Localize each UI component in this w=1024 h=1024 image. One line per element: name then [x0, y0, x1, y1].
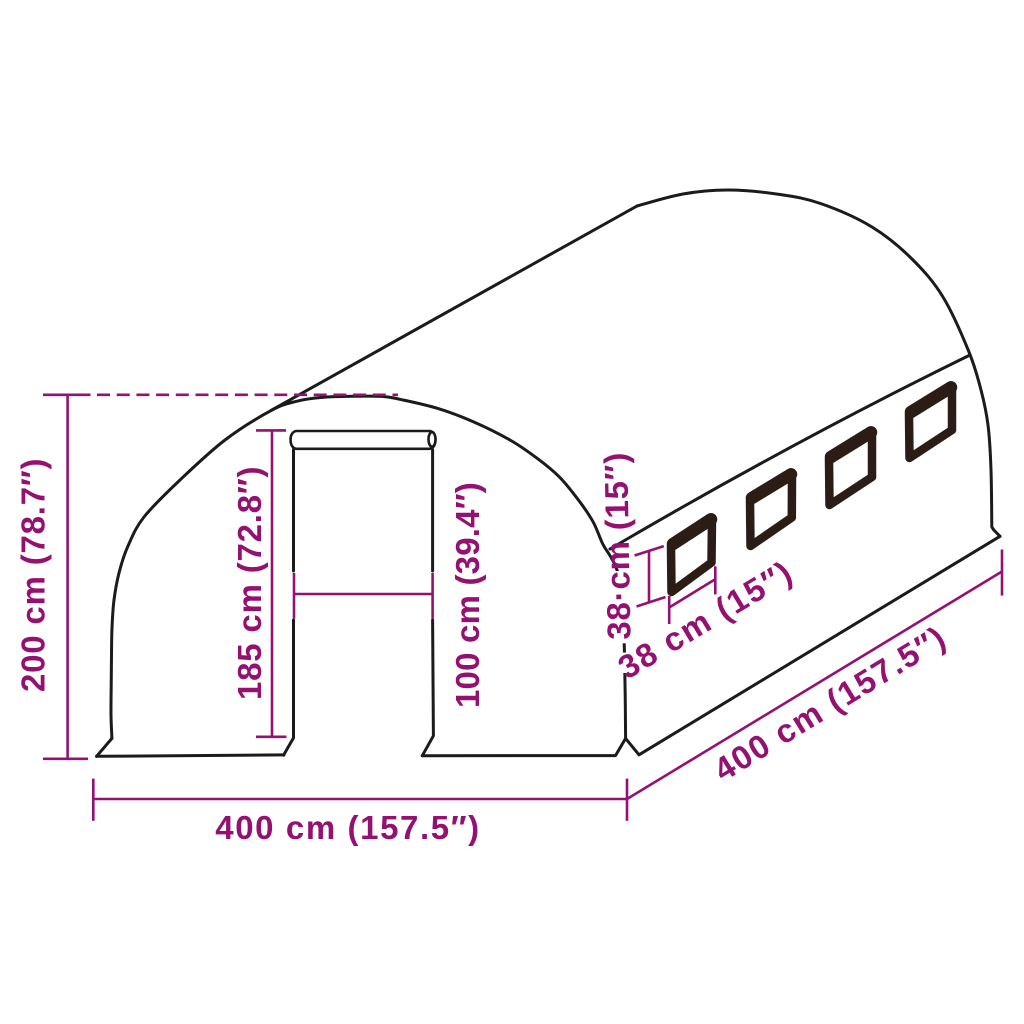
svg-text:100 cm (39.4″): 100 cm (39.4″) — [449, 482, 486, 708]
svg-text:185 cm (72.8″): 185 cm (72.8″) — [231, 466, 268, 700]
svg-text:38·cm (15″): 38·cm (15″) — [597, 452, 637, 640]
svg-text:400 cm (157.5″): 400 cm (157.5″) — [215, 809, 480, 846]
svg-text:200 cm (78.7″): 200 cm (78.7″) — [15, 458, 52, 692]
